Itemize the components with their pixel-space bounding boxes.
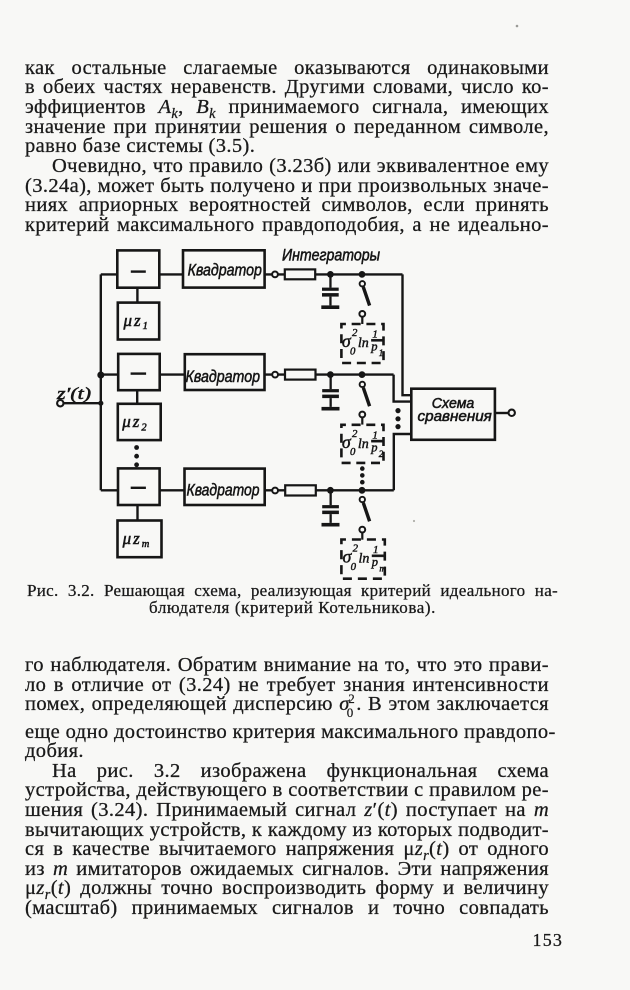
- svg-text:Квадратор: Квадратор: [187, 481, 260, 500]
- svg-text:μz2: μz2: [121, 412, 148, 433]
- svg-text:Квадратор: Квадратор: [188, 260, 262, 279]
- svg-text:μzm: μzm: [122, 529, 152, 550]
- svg-text:сравнения: сравнения: [418, 409, 493, 425]
- svg-text:1: 1: [379, 348, 384, 358]
- svg-text:Интеграторы: Интеграторы: [282, 247, 380, 265]
- svg-text:2: 2: [379, 449, 384, 459]
- svg-text:m: m: [379, 564, 386, 574]
- svg-text:0: 0: [350, 345, 356, 357]
- svg-text:z′(t): z′(t): [56, 384, 92, 403]
- svg-text:p: p: [370, 340, 377, 354]
- svg-text:μz1: μz1: [123, 311, 150, 332]
- svg-text:ln: ln: [358, 336, 369, 351]
- svg-text:Квадратор: Квадратор: [186, 367, 261, 386]
